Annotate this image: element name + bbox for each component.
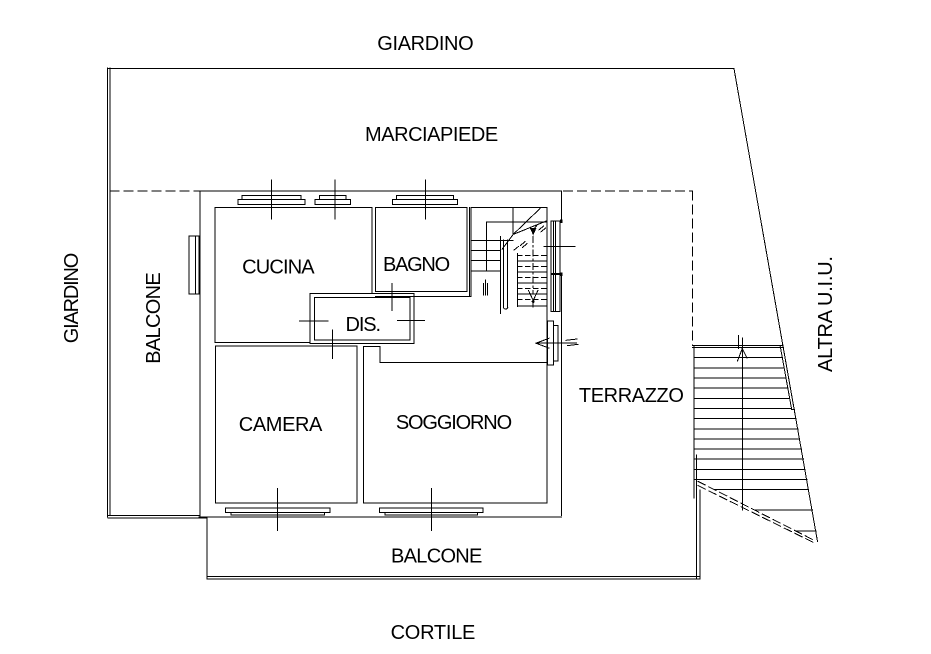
svg-text:CUCINA: CUCINA [242, 257, 315, 279]
svg-text:GIARDINO: GIARDINO [377, 33, 473, 55]
svg-text:TERRAZZO: TERRAZZO [579, 385, 684, 407]
svg-text:BAGNO: BAGNO [383, 254, 450, 276]
svg-text:MARCIAPIEDE: MARCIAPIEDE [365, 124, 498, 146]
svg-text:ALTRA U.I.U.: ALTRA U.I.U. [815, 256, 837, 372]
svg-text:CAMERA: CAMERA [239, 414, 323, 436]
svg-text:BALCONE: BALCONE [143, 272, 165, 364]
svg-text:DIS.: DIS. [346, 314, 382, 336]
svg-text:BALCONE: BALCONE [391, 546, 482, 568]
svg-text:SOGGIORNO: SOGGIORNO [396, 412, 512, 434]
svg-text:GIARDINO: GIARDINO [61, 253, 83, 344]
svg-text:CORTILE: CORTILE [391, 622, 476, 644]
